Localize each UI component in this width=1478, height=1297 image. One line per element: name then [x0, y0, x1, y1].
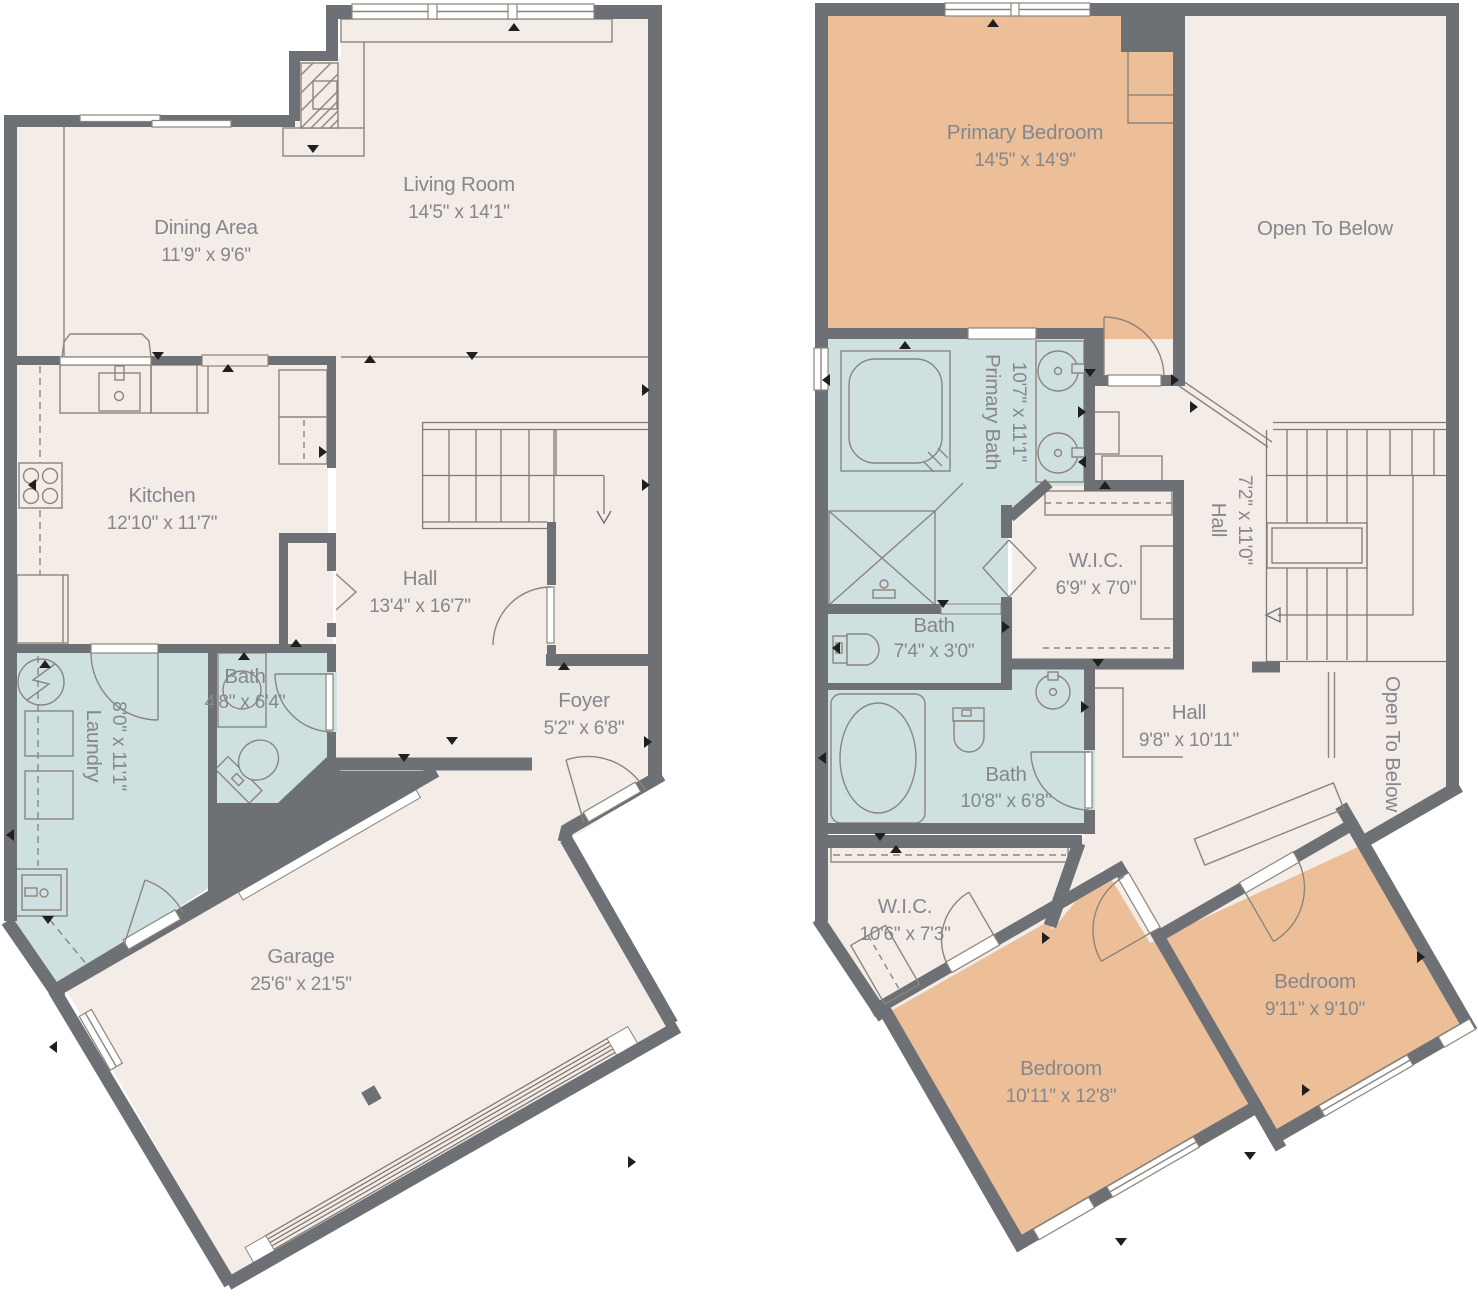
svg-text:7'4" x 3'0": 7'4" x 3'0" [894, 641, 975, 662]
svg-text:5'2" x 6'8": 5'2" x 6'8" [544, 718, 625, 739]
svg-text:9'11" x 9'10": 9'11" x 9'10" [1265, 999, 1365, 1020]
svg-text:14'5" x 14'9": 14'5" x 14'9" [974, 150, 1076, 171]
svg-text:Primary Bath: Primary Bath [981, 354, 1004, 470]
svg-text:25'6" x 21'5": 25'6" x 21'5" [250, 974, 352, 995]
svg-text:6'9" x 7'0": 6'9" x 7'0" [1056, 578, 1137, 599]
svg-text:4'8" x 6'4": 4'8" x 6'4" [205, 692, 286, 713]
svg-text:Kitchen: Kitchen [129, 484, 196, 507]
svg-text:Bath: Bath [913, 614, 954, 637]
svg-text:Laundry: Laundry [82, 710, 105, 784]
svg-text:12'10" x 11'7": 12'10" x 11'7" [107, 513, 218, 534]
svg-text:Hall: Hall [1207, 503, 1230, 538]
svg-text:Bath: Bath [224, 665, 265, 688]
svg-text:Bedroom: Bedroom [1020, 1057, 1102, 1080]
svg-text:Hall: Hall [403, 567, 438, 590]
svg-text:10'7" x 11'1": 10'7" x 11'1" [1008, 362, 1029, 462]
svg-text:8'0" x 11'1": 8'0" x 11'1" [108, 701, 129, 791]
svg-text:Dining Area: Dining Area [154, 216, 259, 239]
svg-text:13'4" x 16'7": 13'4" x 16'7" [369, 596, 471, 617]
svg-text:Bedroom: Bedroom [1274, 970, 1356, 993]
svg-text:10'11" x 12'8": 10'11" x 12'8" [1006, 1086, 1117, 1107]
svg-text:W.I.C.: W.I.C. [878, 895, 933, 918]
svg-text:10'8" x 6'8": 10'8" x 6'8" [960, 791, 1051, 812]
svg-text:10'6" x 7'3": 10'6" x 7'3" [859, 924, 950, 945]
svg-text:11'9" x 9'6": 11'9" x 9'6" [161, 245, 251, 266]
svg-text:Open To Below: Open To Below [1381, 676, 1404, 812]
svg-text:9'8" x 10'11": 9'8" x 10'11" [1139, 730, 1239, 751]
svg-text:Open To Below: Open To Below [1257, 217, 1393, 240]
svg-text:Bath: Bath [985, 763, 1026, 786]
svg-text:Living Room: Living Room [403, 173, 515, 196]
svg-text:Garage: Garage [267, 945, 334, 968]
svg-text:W.I.C.: W.I.C. [1069, 549, 1124, 572]
svg-text:7'2" x 11'0": 7'2" x 11'0" [1234, 475, 1255, 565]
svg-text:Hall: Hall [1172, 701, 1207, 724]
svg-text:Primary Bedroom: Primary Bedroom [947, 121, 1104, 144]
svg-text:14'5" x 14'1": 14'5" x 14'1" [408, 202, 510, 223]
svg-text:Foyer: Foyer [558, 689, 610, 712]
